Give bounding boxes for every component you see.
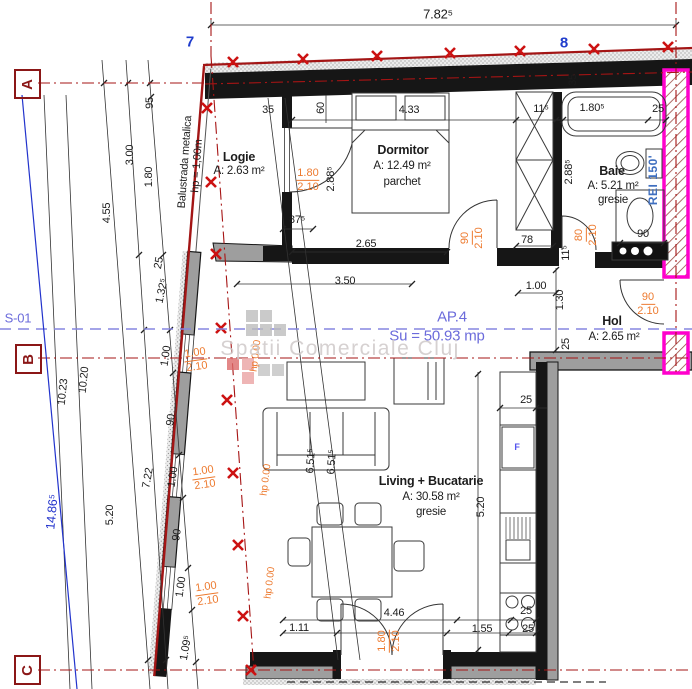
- opening-dim-entry-door-w: 90: [641, 291, 655, 305]
- dim-baie-90: 90: [637, 228, 649, 240]
- dim-dorm-265: 2.65: [356, 238, 377, 250]
- opening-dim-dormitor-door-w: 90: [459, 231, 473, 245]
- dim-diag-1: 6.51⁵: [304, 448, 318, 474]
- bathtub: [562, 92, 666, 136]
- room-name-hol: Hol: [602, 314, 622, 328]
- dim-v180: 1.80: [143, 167, 155, 188]
- dim-bot-25b: 25: [522, 623, 534, 635]
- dim-logie-60: 60: [315, 102, 327, 114]
- dim-diag-2: 6.51⁵: [325, 449, 339, 475]
- grid-marker-B-label: B: [20, 354, 37, 365]
- dim-total-width: 7.82⁵: [423, 7, 453, 22]
- room-area-hol: A: 2.65 m²: [588, 331, 639, 343]
- dim-kit-25: 25: [520, 394, 532, 406]
- opening-dim-baie-door: 80 2.10: [573, 224, 599, 245]
- room-finish-baie: gresie: [598, 194, 628, 206]
- grid-marker-7: 7: [186, 34, 194, 51]
- watermark-text: Spatii Comerciale Cluj: [220, 337, 460, 361]
- opening-dim-window3: 1.00 2.10: [194, 579, 221, 608]
- dim-hol-100: 1.00: [526, 280, 547, 292]
- opening-dim-baie-door-h: 2.10: [587, 224, 600, 245]
- dim-hol-25: 25: [560, 338, 572, 350]
- dim-v455: 4.55: [101, 203, 113, 224]
- opening-dim-entry-door-h: 2.10: [637, 305, 658, 318]
- section-label: S-01: [5, 311, 32, 326]
- room-area-dormitor: A: 12.49 m²: [373, 160, 430, 172]
- opening-dim-logie-door: 1.80 2.10: [296, 167, 319, 193]
- grid-marker-8: 8: [560, 35, 568, 52]
- armchair: [394, 358, 444, 404]
- bathroom-counter: [612, 242, 668, 260]
- dim-w90-1: 90: [170, 528, 184, 541]
- fridge-symbol: F: [514, 442, 519, 452]
- dim-hol-130: 1.30: [554, 290, 566, 311]
- dining-table: [288, 503, 424, 621]
- opening-dim-entry-door: 90 2.10: [637, 291, 658, 317]
- dim-dorm-350: 3.50: [335, 275, 356, 287]
- room-finish-dormitor: parchet: [384, 176, 421, 188]
- dim-bot-25a: 25: [520, 605, 532, 617]
- apartment-label: AP.4: [437, 309, 467, 326]
- opening-dim-window1: 1.00 2.10: [183, 345, 210, 374]
- grid-marker-A-label: A: [19, 79, 36, 90]
- grid-marker-C-label: C: [19, 665, 36, 676]
- dim-baie-115: 11⁵: [560, 245, 572, 260]
- room-name-dormitor: Dormitor: [377, 143, 428, 157]
- dim-v300: 3.00: [124, 145, 136, 166]
- dim-bot-446: 4.46: [384, 607, 405, 619]
- opening-dim-logie-door-h: 2.10: [297, 181, 318, 194]
- room-area-baie: A: 5.21 m²: [587, 180, 638, 192]
- coffee-table: [287, 362, 365, 400]
- room-name-logie: Logie: [223, 150, 255, 164]
- opening-dim-baie-door-w: 80: [573, 228, 587, 242]
- room-area-living: A: 30.58 m²: [402, 491, 459, 503]
- opening-dim-terrace-door: 1.80 2.10: [376, 629, 402, 652]
- dim-v95: 95: [144, 97, 156, 109]
- opening-dim-dormitor-door-h: 2.10: [473, 227, 486, 248]
- dim-logie-288: 2.88⁵: [325, 167, 337, 192]
- room-finish-living: gresie: [416, 506, 446, 518]
- dim-v520: 5.20: [104, 505, 116, 526]
- fire-rating-label: REI 150': [646, 155, 660, 205]
- dim-baie-1805: 1.80⁵: [580, 102, 605, 114]
- kitchen-sink: [506, 517, 530, 560]
- dim-bot-155: 1.55: [472, 623, 493, 635]
- room-name-baie: Baie: [599, 164, 625, 178]
- dim-kit-520: 5.20: [475, 497, 487, 518]
- grid-marker-B: B: [15, 344, 42, 374]
- dim-logie-35: 35: [262, 104, 274, 116]
- dim-dorm-115: 11⁵: [533, 103, 548, 115]
- opening-dim-dormitor-door: 90 2.10: [459, 227, 485, 248]
- dim-baie-25: 25: [652, 103, 664, 115]
- grid-marker-C: C: [14, 655, 41, 685]
- opening-dim-terrace-door-h: 2.10: [390, 630, 403, 651]
- room-name-living: Living + Bucatarie: [379, 474, 483, 488]
- dim-dorm-433: 4.33: [399, 104, 420, 116]
- door-swings: [290, 128, 664, 655]
- opening-dim-terrace-door-w: 1.80: [376, 629, 390, 652]
- opening-dim-logie-door-w: 1.80: [296, 167, 319, 181]
- opening-dim-window2: 1.00 2.10: [191, 463, 218, 492]
- dim-wall-35: 35: [567, 74, 579, 86]
- dim-v25-top: 25: [152, 256, 166, 270]
- floor-plan-canvas: A B C 7 8 S-01 AP.4 Su = 50.93 mp REI 15…: [0, 0, 692, 689]
- room-area-logie: A: 2.63 m²: [213, 165, 264, 177]
- dim-bot-111: 1.11: [289, 622, 309, 634]
- dim-logie-875: 87⁵: [289, 214, 305, 226]
- dim-v90-0: 90: [164, 413, 178, 426]
- dim-dorm-78: 78: [521, 234, 533, 246]
- dim-dorm-288: 2.88⁵: [563, 160, 575, 185]
- grid-marker-A: A: [14, 69, 41, 99]
